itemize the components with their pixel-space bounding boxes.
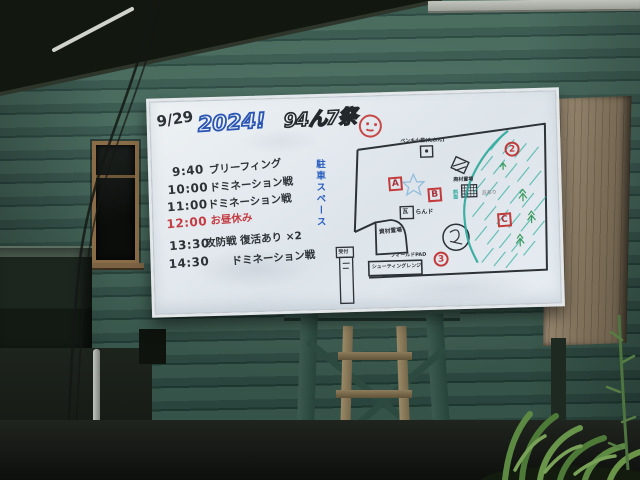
- slope-note-label: 斜面: [453, 189, 458, 199]
- hill-note-label: 丘あり: [482, 190, 497, 195]
- scrap-yard-label: 廃材置場: [453, 177, 473, 183]
- window-sash: [96, 175, 135, 178]
- event-year-title: 2024!: [197, 110, 266, 135]
- map-zone-b: B: [427, 187, 442, 202]
- photo-scene: 9/29 2024! 94ん7祭 9:40 ブリーフィング 10:00 ドミネー…: [0, 0, 640, 480]
- schedule-time: 12:00: [166, 215, 208, 230]
- schedule-time: 10:00: [167, 181, 209, 196]
- field-pad-label: フィールドPAD: [390, 252, 426, 258]
- map-zone-c: C: [497, 212, 512, 227]
- ladder-rung: [336, 390, 412, 398]
- ground: [0, 420, 640, 480]
- schedule-time: 14:30: [168, 255, 210, 270]
- storage-crate: [0, 246, 92, 352]
- whiteboard: 9/29 2024! 94ん7祭 9:40 ブリーフィング 10:00 ドミネー…: [146, 87, 565, 317]
- window-sill: [87, 263, 144, 270]
- rain-gutter: [428, 0, 640, 13]
- ladder-rung: [338, 352, 412, 360]
- whiteboard-face: 9/29 2024! 94ん7祭 9:40 ブリーフィング 10:00 ドミネー…: [149, 90, 562, 314]
- reception-label: 受付: [338, 249, 348, 254]
- map-zone-a: A: [388, 176, 403, 191]
- parking-space-note: 駐車スペース: [314, 159, 324, 228]
- tile-land-box-label: 瓦: [402, 209, 408, 215]
- window: [92, 141, 139, 264]
- schedule-time: 11:00: [167, 198, 209, 213]
- event-name-title: 94ん7祭: [283, 108, 357, 132]
- schedule-time: 9:40: [172, 163, 205, 178]
- tile-land-label: らんド: [415, 209, 433, 216]
- wall-mounted-box: [139, 329, 166, 364]
